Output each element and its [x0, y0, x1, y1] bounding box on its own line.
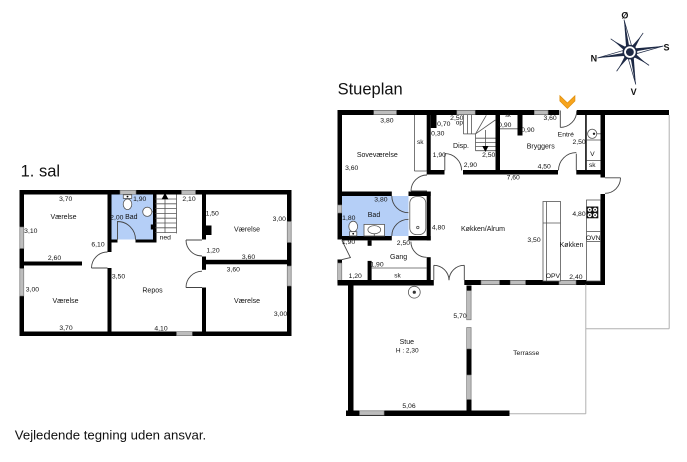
svg-text:7,60: 7,60 — [507, 174, 520, 181]
svg-text:5,70: 5,70 — [453, 313, 466, 320]
svg-text:ned: ned — [160, 235, 172, 242]
svg-text:Repos: Repos — [142, 287, 163, 294]
svg-text:3,80: 3,80 — [374, 196, 387, 203]
svg-text:3,10: 3,10 — [24, 228, 37, 235]
svg-text:H : 2,30: H : 2,30 — [396, 348, 419, 355]
svg-text:Stue: Stue — [400, 339, 415, 346]
svg-text:2,50: 2,50 — [572, 139, 585, 146]
svg-text:3,60: 3,60 — [345, 165, 358, 172]
svg-text:1,90: 1,90 — [133, 196, 146, 203]
svg-text:Terrasse: Terrasse — [513, 350, 539, 357]
svg-text:6,10: 6,10 — [91, 241, 104, 248]
svg-text:0,90: 0,90 — [498, 122, 511, 129]
svg-text:1,50: 1,50 — [206, 210, 219, 217]
svg-text:2,50: 2,50 — [397, 240, 410, 247]
svg-text:Bad: Bad — [125, 214, 138, 221]
svg-text:Ø: Ø — [621, 11, 628, 21]
svg-text:1,90: 1,90 — [433, 152, 446, 159]
svg-text:S: S — [663, 43, 669, 53]
svg-text:3,60: 3,60 — [242, 254, 255, 261]
svg-text:Gang: Gang — [390, 254, 407, 261]
svg-text:sk: sk — [394, 273, 401, 280]
svg-text:1,90: 1,90 — [342, 239, 355, 246]
svg-text:2,40: 2,40 — [569, 274, 582, 281]
svg-text:3,70: 3,70 — [59, 196, 72, 203]
svg-text:2,90: 2,90 — [464, 162, 477, 169]
svg-text:0,70: 0,70 — [437, 121, 450, 128]
svg-text:sk: sk — [589, 162, 596, 169]
svg-text:Værelse: Værelse — [52, 298, 78, 305]
svg-text:Entré: Entré — [558, 131, 574, 138]
svg-text:4,80: 4,80 — [572, 211, 585, 218]
svg-text:op: op — [456, 119, 464, 126]
svg-text:Værelse: Værelse — [50, 214, 76, 221]
svg-text:Stueplan: Stueplan — [338, 81, 403, 99]
svg-text:Vejledende tegning uden ansvar: Vejledende tegning uden ansvar. — [15, 428, 206, 443]
svg-text:3,70: 3,70 — [59, 325, 72, 332]
svg-text:V: V — [631, 87, 637, 97]
svg-text:4,80: 4,80 — [432, 225, 445, 232]
svg-text:3,80: 3,80 — [380, 118, 393, 125]
svg-text:N: N — [591, 53, 598, 63]
svg-text:2,60: 2,60 — [48, 255, 61, 262]
svg-text:3,50: 3,50 — [527, 237, 540, 244]
svg-text:OPV: OPV — [546, 273, 561, 280]
svg-text:3,60: 3,60 — [543, 115, 556, 122]
svg-text:Bad: Bad — [368, 212, 381, 219]
svg-text:Værelse: Værelse — [234, 226, 260, 233]
svg-text:1. sal: 1. sal — [21, 162, 60, 180]
svg-text:2,50: 2,50 — [482, 152, 495, 159]
svg-text:3,00: 3,00 — [274, 311, 287, 318]
svg-text:1,80: 1,80 — [342, 215, 355, 222]
svg-text:V: V — [590, 151, 595, 158]
svg-text:4,10: 4,10 — [154, 325, 167, 332]
svg-text:0,90: 0,90 — [521, 127, 534, 134]
svg-text:3,50: 3,50 — [112, 274, 125, 281]
svg-text:Disp.: Disp. — [453, 143, 469, 150]
svg-text:4,50: 4,50 — [538, 163, 551, 170]
svg-text:2,10: 2,10 — [182, 196, 195, 203]
svg-text:1,90: 1,90 — [370, 261, 383, 268]
svg-text:sk: sk — [505, 113, 511, 119]
svg-text:sk: sk — [417, 139, 424, 146]
svg-text:3,00: 3,00 — [26, 286, 39, 293]
svg-text:3,00: 3,00 — [273, 216, 286, 223]
svg-text:3,60: 3,60 — [227, 267, 240, 274]
svg-text:1,20: 1,20 — [206, 247, 219, 254]
svg-text:OVN: OVN — [586, 235, 601, 242]
svg-text:5,06: 5,06 — [402, 403, 415, 410]
svg-text:Bryggers: Bryggers — [527, 144, 556, 151]
svg-text:Værelse: Værelse — [234, 298, 260, 305]
svg-text:1,20: 1,20 — [349, 273, 362, 280]
svg-text:Soveværelse: Soveværelse — [357, 152, 398, 159]
svg-text:2,00: 2,00 — [110, 215, 123, 222]
svg-text:Køkken: Køkken — [560, 242, 584, 249]
svg-text:0,30: 0,30 — [431, 131, 444, 138]
svg-text:Køkken/Alrum: Køkken/Alrum — [461, 226, 505, 233]
